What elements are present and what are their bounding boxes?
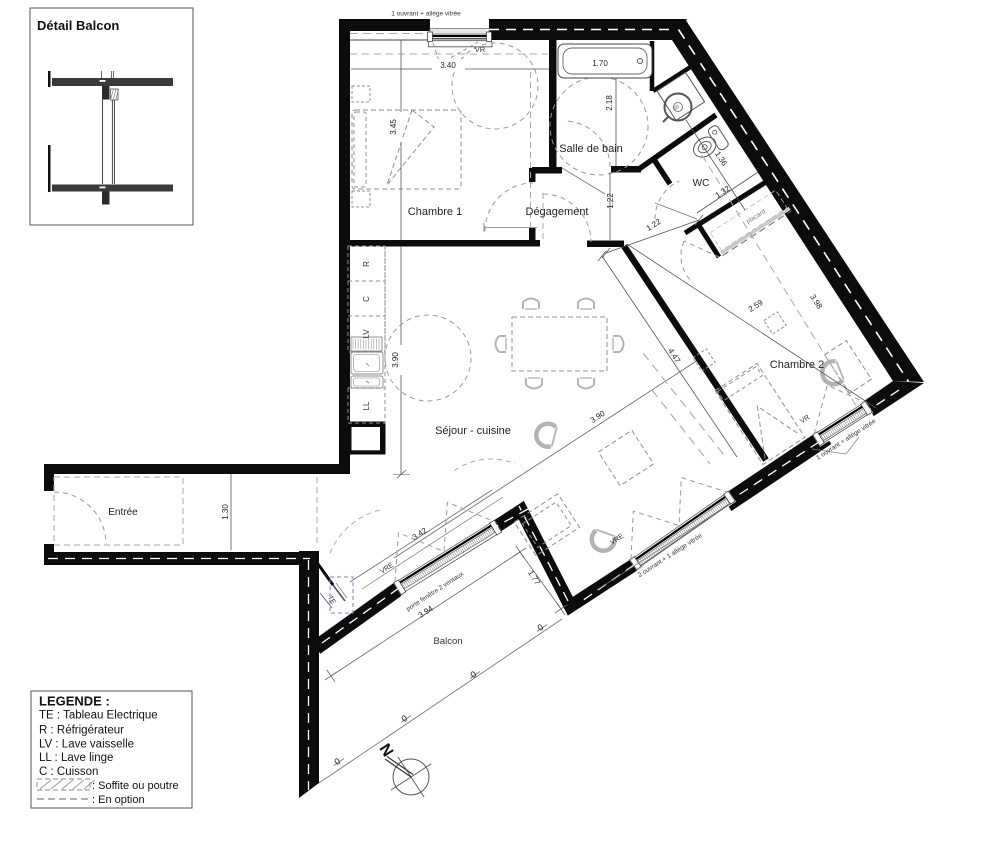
svg-text:2.18: 2.18 — [605, 95, 614, 111]
svg-text:1.30: 1.30 — [221, 504, 230, 520]
svg-text:1.22: 1.22 — [606, 193, 615, 209]
svg-text:: Soffite ou poutre: : Soffite ou poutre — [92, 780, 179, 792]
svg-text:Salle de bain: Salle de bain — [559, 143, 623, 155]
svg-text:Balcon: Balcon — [433, 636, 462, 647]
svg-text:C : Cuisson: C : Cuisson — [39, 766, 98, 778]
svg-text:LL: LL — [362, 401, 371, 410]
svg-text:WC: WC — [693, 178, 710, 189]
svg-text:Chambre 2: Chambre 2 — [770, 359, 824, 371]
svg-text:Chambre 1: Chambre 1 — [408, 206, 462, 218]
svg-text:C: C — [362, 296, 371, 302]
svg-text:3.40: 3.40 — [440, 61, 456, 70]
svg-text:R : Réfrigérateur: R : Réfrigérateur — [39, 725, 124, 737]
svg-text:Détail Balcon: Détail Balcon — [37, 18, 119, 33]
svg-text:3.45: 3.45 — [389, 119, 398, 135]
svg-text:Entrée: Entrée — [108, 507, 138, 518]
svg-text:LV : Lave vaisselle: LV : Lave vaisselle — [39, 739, 134, 751]
svg-text:Dégagement: Dégagement — [526, 206, 589, 218]
svg-text:VR: VR — [475, 45, 486, 54]
svg-text:LL : Lave linge: LL : Lave linge — [39, 752, 113, 764]
svg-text:R: R — [362, 261, 371, 267]
svg-text:1.70: 1.70 — [592, 59, 608, 68]
svg-text:1 ouvrant + allège vitrée: 1 ouvrant + allège vitrée — [391, 11, 461, 18]
svg-text:Séjour - cuisine: Séjour - cuisine — [435, 425, 511, 437]
svg-text:TE : Tableau Electrique: TE : Tableau Electrique — [39, 710, 158, 722]
svg-text:LEGENDE :: LEGENDE : — [39, 694, 110, 709]
svg-text:3.90: 3.90 — [391, 352, 400, 368]
svg-text:: En option: : En option — [92, 794, 145, 806]
